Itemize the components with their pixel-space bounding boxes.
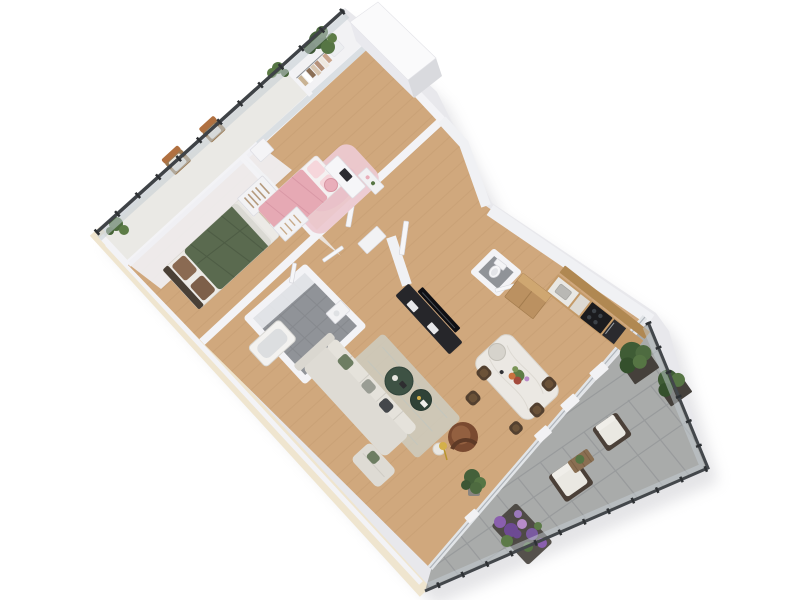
floorplan-render-canvas (0, 0, 800, 600)
kids-desk-chair (325, 179, 338, 192)
apartment-3d-floorplan (0, 0, 800, 600)
leather-armchair (448, 422, 478, 452)
